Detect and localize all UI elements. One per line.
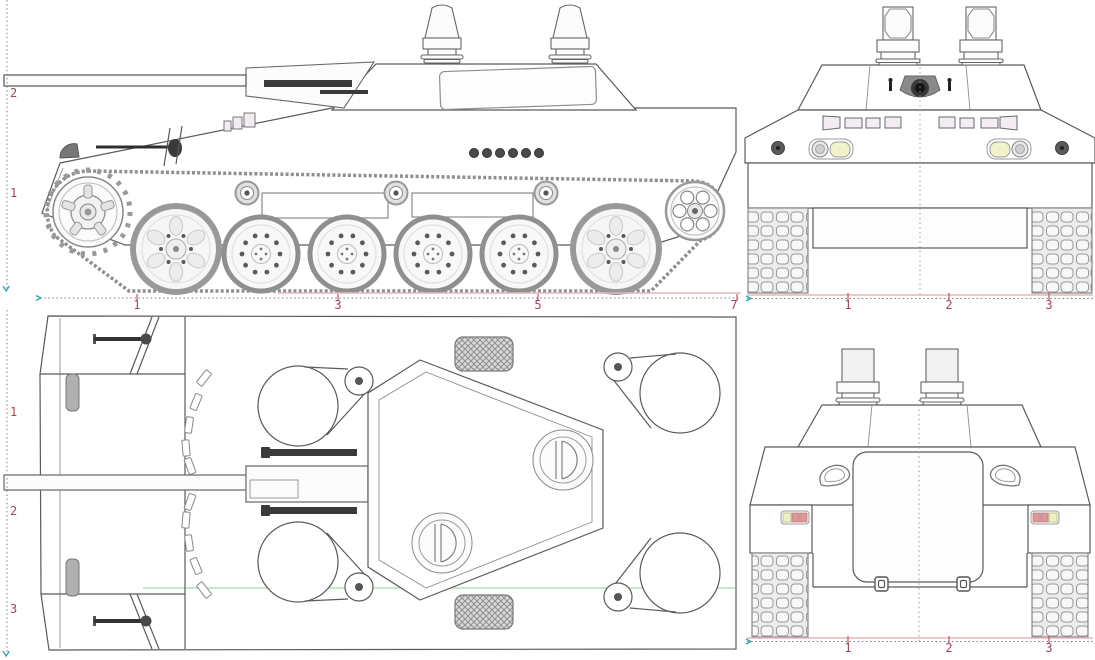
top-view: 1 2 3 bbox=[3, 310, 736, 656]
ruler-number: 1 bbox=[10, 405, 17, 419]
cupola-2-side bbox=[549, 5, 591, 63]
track-rear-left bbox=[752, 553, 808, 637]
rear-horizontal-ruler: 1 2 3 bbox=[746, 636, 1093, 655]
blueprint-canvas: 2 1 1 3 5 7 bbox=[0, 0, 1095, 660]
ruler-number: 2 bbox=[10, 504, 17, 518]
ruler-number: 2 bbox=[945, 641, 952, 655]
ruler-number: 1 bbox=[10, 186, 17, 200]
front-view: 1 2 3 bbox=[745, 7, 1095, 312]
ruler-number: 3 bbox=[1045, 641, 1052, 655]
ruler-number: 1 bbox=[844, 298, 851, 312]
idler-wheel bbox=[666, 182, 724, 240]
turret-side-panel bbox=[439, 66, 596, 109]
track-front-left bbox=[748, 208, 808, 293]
front-horizontal-ruler: 1 2 3 bbox=[746, 293, 1093, 312]
upper-hull-front bbox=[745, 110, 1095, 163]
cupola-2-rear bbox=[920, 349, 964, 405]
cupola-1-side bbox=[421, 5, 463, 63]
side-horizontal-ruler: 1 3 5 7 bbox=[36, 293, 741, 312]
headlight-side bbox=[60, 144, 79, 158]
headlight-left bbox=[809, 139, 853, 159]
ruler-number: 3 bbox=[334, 298, 341, 312]
side-view: 2 1 1 3 5 7 bbox=[3, 0, 741, 312]
ruler-number: 7 bbox=[730, 298, 737, 312]
headlight-right bbox=[987, 139, 1031, 159]
ruler-number: 5 bbox=[534, 298, 541, 312]
cupola-2-front bbox=[959, 7, 1003, 65]
blueprint-page: 2 1 1 3 5 7 bbox=[0, 0, 1095, 660]
track-front-right bbox=[1032, 208, 1092, 293]
ruler-number: 3 bbox=[10, 602, 17, 616]
ruler-number: 1 bbox=[844, 641, 851, 655]
ruler-number: 2 bbox=[945, 298, 952, 312]
turret-rear bbox=[798, 405, 1041, 447]
rear-door bbox=[853, 452, 983, 582]
track-rear-right bbox=[1032, 553, 1088, 637]
rear-view: 1 2 3 bbox=[746, 349, 1093, 655]
ruler-number: 3 bbox=[1045, 298, 1052, 312]
cupola-1-rear bbox=[836, 349, 880, 405]
gun-assembly-side bbox=[4, 62, 374, 108]
side-vertical-ruler: 2 1 bbox=[3, 0, 17, 291]
ruler-number: 1 bbox=[133, 298, 140, 312]
gun-barrel-side bbox=[4, 75, 246, 86]
cupola-1-front bbox=[876, 7, 920, 65]
ruler-number: 2 bbox=[10, 86, 17, 100]
